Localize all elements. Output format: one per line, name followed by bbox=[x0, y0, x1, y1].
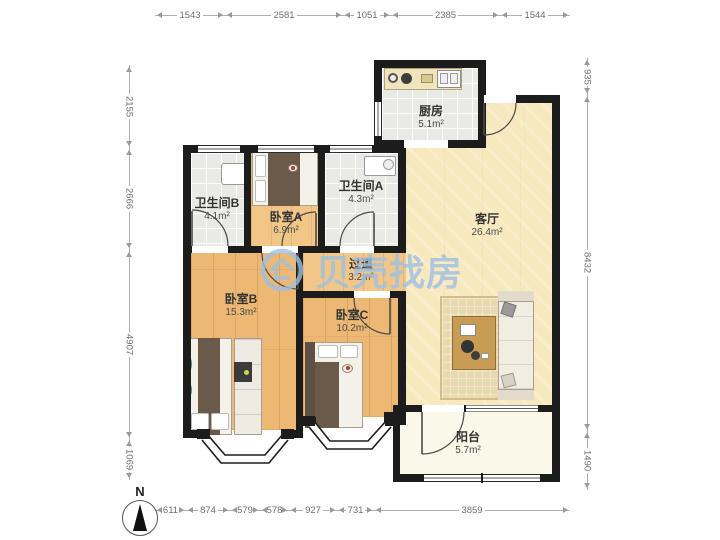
dim-top-3: 2385 bbox=[391, 8, 500, 22]
room-label-bath-a: 卫生间A 4.3m² bbox=[339, 180, 384, 206]
bed-pillow bbox=[340, 345, 358, 358]
window-mullion bbox=[481, 473, 483, 483]
dim-bottom-5: 731 bbox=[337, 503, 374, 517]
room-label-living: 客厅 26.4m² bbox=[471, 213, 502, 239]
door-opening bbox=[484, 95, 516, 103]
bed-decor-dot bbox=[291, 166, 295, 170]
window bbox=[466, 405, 538, 412]
door-opening bbox=[354, 291, 390, 298]
window bbox=[330, 145, 372, 153]
room-label-bath-b: 卫生间B 4.1m² bbox=[195, 197, 240, 223]
wall bbox=[478, 60, 486, 148]
room-label-hallway: 过道 3.2m² bbox=[348, 258, 374, 284]
bed-pillow bbox=[211, 413, 229, 430]
wall bbox=[303, 417, 316, 425]
living-floor-upper bbox=[486, 103, 552, 148]
dim-top-0: 1543 bbox=[155, 8, 225, 22]
wall bbox=[244, 148, 251, 253]
dim-left-3: 1069 bbox=[122, 439, 136, 480]
wall bbox=[283, 430, 303, 438]
door-opening bbox=[422, 405, 464, 412]
dim-right-1: 8432 bbox=[580, 95, 594, 431]
dim-bottom-6: 3859 bbox=[374, 503, 570, 517]
compass: N bbox=[118, 484, 162, 536]
window bbox=[258, 145, 314, 153]
bed-pillow bbox=[255, 180, 266, 202]
dim-top-4: 1544 bbox=[500, 8, 570, 22]
wall bbox=[318, 148, 325, 253]
room-label-bedroom-a: 卧室A 6.9m² bbox=[270, 211, 303, 237]
stove-icon bbox=[401, 73, 412, 84]
bed-blanket bbox=[268, 152, 300, 206]
door-opening bbox=[192, 246, 228, 253]
dim-left-1: 2666 bbox=[122, 148, 136, 250]
door-opening bbox=[404, 140, 448, 148]
dim-left-0: 2155 bbox=[122, 65, 136, 148]
window bbox=[374, 102, 382, 136]
compass-needle-icon bbox=[133, 504, 147, 531]
room-label-bedroom-c: 卧室C 10.2m² bbox=[336, 309, 369, 335]
table-frame bbox=[460, 324, 476, 336]
nightstand-lamp-dot bbox=[244, 370, 249, 375]
wall bbox=[183, 145, 191, 438]
dim-left-2: 4907 bbox=[122, 250, 136, 439]
stove-icon bbox=[388, 73, 398, 83]
bed-pillow bbox=[255, 155, 266, 177]
dim-top-2: 1051 bbox=[343, 8, 391, 22]
wall bbox=[398, 148, 406, 253]
room-label-bedroom-b: 卧室B 15.3m² bbox=[225, 293, 258, 319]
dim-right-0: 935 bbox=[580, 58, 594, 95]
teacup-icon bbox=[471, 351, 480, 360]
compass-north-label: N bbox=[118, 484, 162, 499]
bed-pillow bbox=[318, 345, 338, 358]
dim-bottom-4: 927 bbox=[289, 503, 337, 517]
dim-bottom-3: 578 bbox=[260, 503, 289, 517]
bed-decor-dot bbox=[346, 366, 350, 370]
wall bbox=[374, 60, 486, 68]
dim-right-2: 1490 bbox=[580, 431, 594, 490]
bed-pillow bbox=[191, 413, 209, 430]
bed-blanket bbox=[315, 362, 339, 428]
sink-basin bbox=[440, 73, 448, 84]
dim-bottom-2: 579 bbox=[230, 503, 260, 517]
wall bbox=[552, 95, 560, 482]
wall bbox=[393, 405, 400, 482]
floorplan-canvas: 厨房 5.1m² 卫生间B 4.1m² 卧室A 6.9m² 卫生间A 4.3m²… bbox=[0, 0, 720, 540]
compass-dial bbox=[122, 500, 158, 536]
table-card bbox=[481, 353, 489, 359]
bedroom-b-nightstand bbox=[234, 362, 252, 382]
dim-top-1: 2581 bbox=[225, 8, 343, 22]
bedroom-b-wardrobe bbox=[234, 338, 262, 435]
door-opening bbox=[340, 246, 374, 253]
window bbox=[198, 145, 240, 153]
kitchen-appliance-icon bbox=[421, 74, 433, 83]
room-label-kitchen: 厨房 5.1m² bbox=[418, 105, 444, 131]
room-label-balcony: 阳台 5.7m² bbox=[455, 431, 481, 457]
sink-basin bbox=[450, 73, 458, 84]
sofa-armrest bbox=[498, 389, 534, 400]
dim-bottom-1: 874 bbox=[186, 503, 230, 517]
washer-drum-icon bbox=[383, 159, 394, 170]
wall bbox=[296, 291, 303, 438]
wall bbox=[398, 291, 406, 412]
wall bbox=[183, 430, 208, 438]
door-opening bbox=[262, 246, 298, 253]
bed-headboard bbox=[305, 342, 315, 428]
